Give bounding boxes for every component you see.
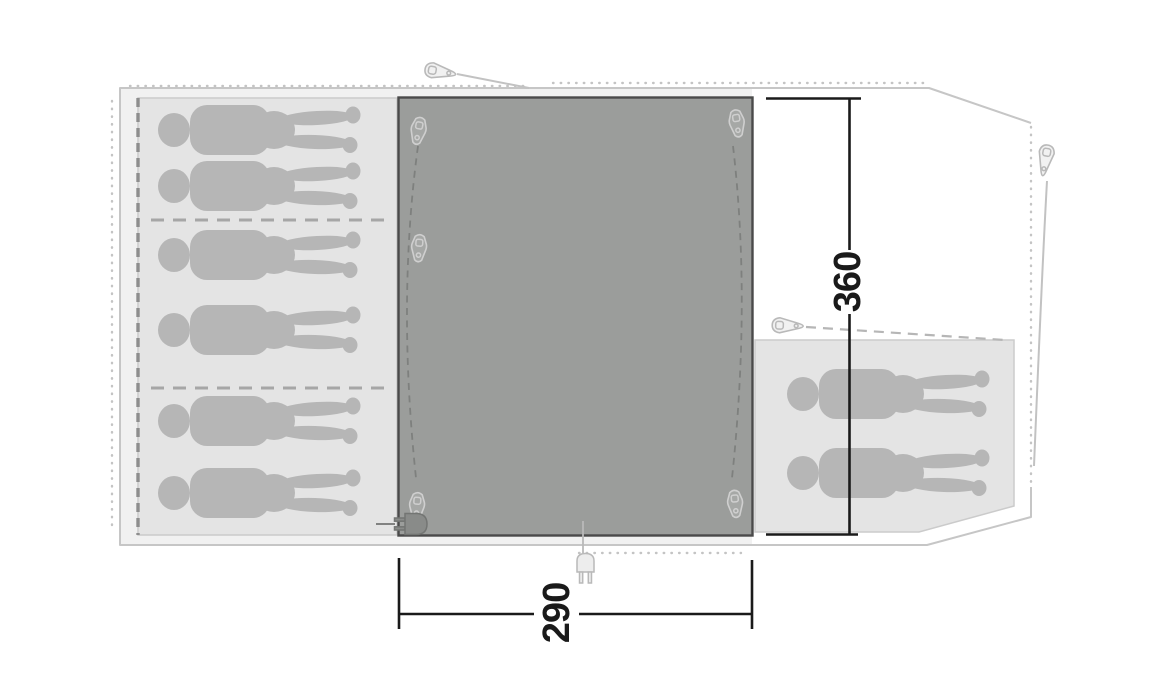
tent-floorplan-diagram: 360 290 bbox=[0, 0, 1156, 700]
dimension-label-360: 360 bbox=[827, 252, 869, 312]
floorplan-svg: 360 290 bbox=[0, 0, 1156, 700]
dimension-label-290: 290 bbox=[536, 583, 578, 643]
right-sleeping-cabin bbox=[755, 340, 1014, 532]
right-cabin-floor bbox=[755, 340, 1014, 532]
left-sleeping-cabin bbox=[138, 98, 397, 535]
living-area-floor bbox=[399, 98, 753, 536]
living-area-panel bbox=[399, 98, 753, 536]
